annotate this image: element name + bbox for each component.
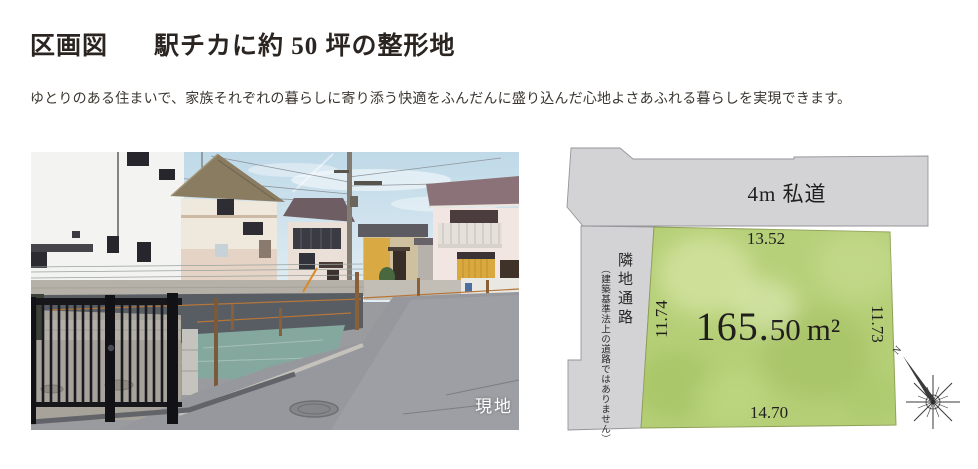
passage-shape: [568, 226, 654, 430]
area-unit: m²: [807, 312, 840, 347]
page-title: 区画図駅チカに約 50 坪の整形地: [30, 26, 960, 62]
compass: N: [891, 344, 960, 429]
site-photo: 現地: [31, 152, 519, 430]
photo-caption: 現地: [475, 392, 513, 417]
manhole-large: [290, 401, 338, 417]
flyer-page: 区画図駅チカに約 50 坪の整形地 ゆとりのある住まいで、家族それぞれの暮らしに…: [0, 0, 978, 469]
header: 区画図駅チカに約 50 坪の整形地 ゆとりのある住まいで、家族それぞれの暮らしに…: [30, 26, 960, 108]
house-center: [283, 198, 355, 285]
passage-note: （建築基準法上の道路ではありません）: [597, 264, 611, 444]
house-left-white: [31, 152, 184, 285]
dimension-top: 13.52: [726, 230, 806, 249]
site-photo-illustration: [31, 152, 519, 430]
lot-area-label: 165.50m²: [648, 305, 888, 349]
wall-sign: [465, 283, 472, 292]
area-main: 165.: [696, 304, 770, 349]
compass-needle: [903, 356, 935, 401]
house-right: [426, 176, 519, 292]
title-main: 駅チカに約 50 坪の整形地: [154, 33, 456, 60]
site-plan-diagram: N 4m 私道 13.52 11.74 11.73 14.70 165.50m²…: [556, 145, 976, 437]
passage-label: 隣地通路: [614, 252, 635, 328]
page-subtitle: ゆとりのある住まいで、家族それぞれの暮らしに寄り添う快適をふんだんに盛り込んだ心…: [30, 88, 960, 108]
title-section: 区画図: [30, 33, 108, 60]
dimension-bottom: 14.70: [729, 404, 809, 423]
area-frac: 50: [770, 312, 801, 347]
concrete-post: [182, 329, 198, 395]
road-label: 4m 私道: [707, 183, 867, 206]
